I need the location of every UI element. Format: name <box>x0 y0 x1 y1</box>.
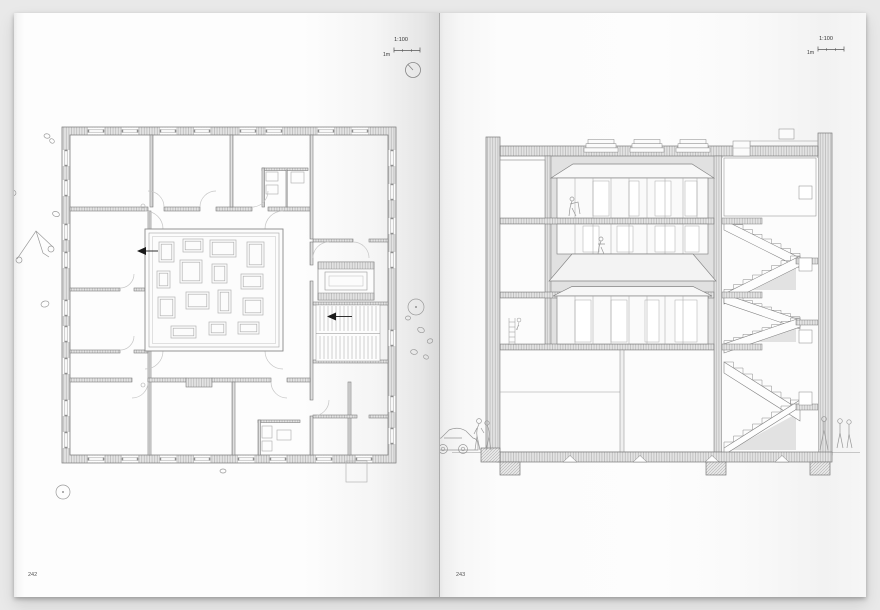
foundation <box>481 448 832 475</box>
pavement-grate <box>346 461 367 482</box>
staircase <box>722 158 818 455</box>
scale-bar <box>394 48 420 53</box>
courtyard <box>137 229 283 351</box>
scale-unit-label: 1m <box>383 52 390 58</box>
page-number: 243 <box>456 572 465 578</box>
floor-plan-drawing: 1:100 1m 242 <box>14 13 440 597</box>
scale-ratio-label: 1:100 <box>394 37 408 43</box>
floor-slab <box>500 218 714 224</box>
handcart-sketch <box>16 231 54 263</box>
pavilion-stack <box>549 164 716 344</box>
scale-ratio-label: 1:100 <box>819 36 833 42</box>
scale-unit-label: 1m <box>807 50 814 56</box>
north-arrow-icon <box>406 63 421 78</box>
floor-slab <box>500 344 714 350</box>
tree-symbol <box>56 485 70 499</box>
book-spread-viewer: 1:100 1m 242 <box>0 0 880 610</box>
left-bay-rooms <box>500 160 545 344</box>
tree-symbol <box>408 299 424 315</box>
left-page: 1:100 1m 242 <box>14 13 440 597</box>
car-sketch <box>440 428 478 453</box>
roof-access-box <box>733 141 750 156</box>
stairwell <box>316 305 380 361</box>
book-spread: 1:100 1m 242 <box>14 13 866 597</box>
scale-bar <box>818 47 844 52</box>
elevator-shaft <box>318 262 374 300</box>
page-number: 242 <box>28 572 37 578</box>
right-page: 1:100 1m 243 <box>440 13 866 597</box>
roof-box <box>779 129 794 139</box>
column <box>620 350 624 452</box>
ground-floor-hall <box>500 350 714 452</box>
flared-eave <box>549 254 716 281</box>
section-drawing: 1:100 1m 243 <box>440 13 866 597</box>
